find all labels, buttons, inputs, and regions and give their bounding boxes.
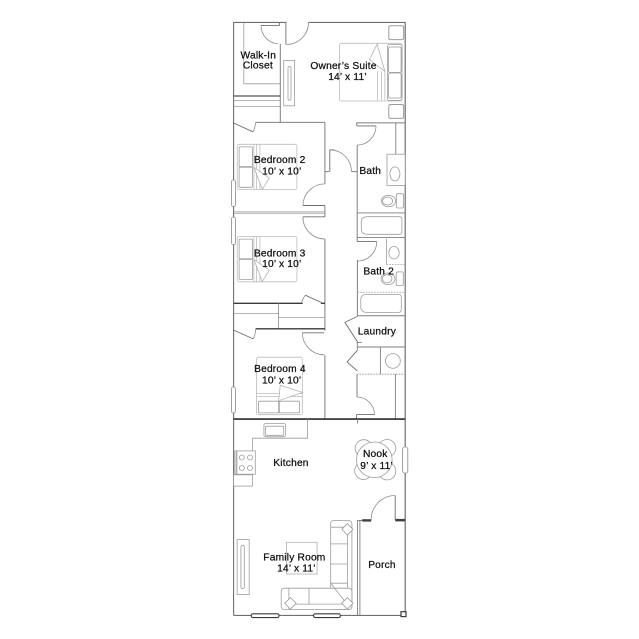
svg-text:14’ x 11’: 14’ x 11’	[277, 563, 316, 574]
svg-text:Nook: Nook	[363, 449, 388, 460]
svg-text:14’ x 11’: 14’ x 11’	[328, 72, 367, 83]
svg-text:Bath 2: Bath 2	[363, 267, 394, 278]
svg-text:10’ x 10’: 10’ x 10’	[262, 259, 301, 270]
svg-text:Bedroom 3: Bedroom 3	[254, 248, 306, 259]
svg-text:Bedroom 4: Bedroom 4	[254, 364, 306, 375]
svg-text:Owner’s Suite: Owner’s Suite	[310, 61, 376, 72]
svg-text:Bedroom 2: Bedroom 2	[254, 155, 306, 166]
svg-text:Closet: Closet	[243, 61, 273, 72]
svg-text:10’ x 10’: 10’ x 10’	[262, 376, 301, 387]
svg-text:Kitchen: Kitchen	[273, 458, 308, 469]
svg-text:Porch: Porch	[368, 560, 396, 571]
svg-text:Laundry: Laundry	[358, 326, 397, 337]
svg-text:9’ x 11’: 9’ x 11’	[360, 461, 393, 472]
svg-text:Family Room: Family Room	[263, 552, 325, 563]
svg-text:Bath: Bath	[359, 166, 381, 177]
svg-text:10’ x 10’: 10’ x 10’	[262, 166, 301, 177]
